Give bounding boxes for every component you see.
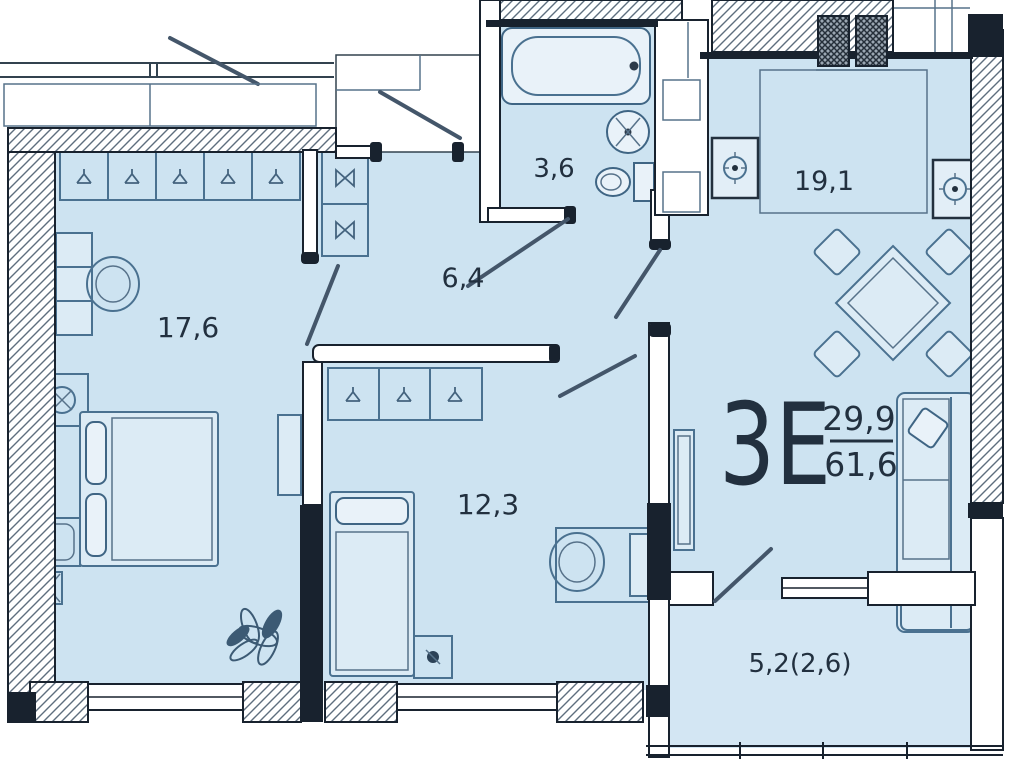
bed-icon	[80, 412, 218, 566]
wall-segment	[968, 503, 1003, 518]
wall-pier	[325, 682, 397, 722]
door-jamb	[649, 323, 671, 337]
wall-column	[647, 503, 671, 600]
wall-segment	[8, 128, 55, 722]
sink-icon	[607, 111, 649, 153]
washer-icon	[712, 138, 758, 198]
door-jamb	[452, 142, 464, 162]
wall-segment	[486, 20, 658, 27]
wall-column	[300, 505, 323, 722]
window-icon	[782, 578, 868, 598]
door-jamb	[370, 142, 382, 162]
living-area-label: 29,9	[822, 399, 895, 438]
room-label-bedroom2: 12,3	[457, 488, 519, 521]
floor-plan-canvas: 17,6 6,4 3,6 19,1 12,3 5,2(2,6) 3Е 29,9 …	[0, 0, 1011, 768]
bathtub-icon	[502, 28, 650, 104]
wall-column	[646, 685, 670, 717]
apartment-type-label: 3Е	[719, 379, 831, 511]
dining-table-icon	[813, 228, 973, 378]
wall-segment	[313, 345, 558, 362]
room-label-hall: 6,4	[442, 263, 485, 294]
wall-segment	[486, 0, 682, 20]
wall-segment	[480, 0, 500, 222]
wall-segment	[303, 362, 322, 505]
wall-pier	[557, 682, 643, 722]
wall-pier	[30, 682, 88, 722]
wall-pier	[669, 572, 713, 605]
wall-segment	[971, 30, 1003, 503]
wall-segment	[488, 208, 572, 222]
vent-shaft-icon	[856, 16, 887, 66]
wall-segment	[303, 150, 317, 262]
door-jamb	[301, 252, 319, 264]
room-label-loggia: 5,2(2,6)	[749, 649, 852, 679]
wall-corner	[8, 692, 36, 722]
total-area-label: 61,6	[824, 445, 897, 484]
tv-icon	[674, 430, 694, 550]
room-label-bedroom: 17,6	[157, 311, 219, 344]
wall-pier	[868, 572, 975, 605]
service-shaft	[655, 20, 708, 215]
room-label-bathroom: 3,6	[533, 154, 574, 184]
room-label-kitchen-living: 19,1	[794, 166, 854, 197]
dresser-icon	[278, 415, 301, 495]
wall-segment	[336, 146, 372, 158]
vent-shaft-icon	[818, 16, 849, 66]
floor-plan: 17,6 6,4 3,6 19,1 12,3 5,2(2,6) 3Е 29,9 …	[0, 0, 1011, 768]
window-icon	[88, 684, 243, 710]
wall-segment	[968, 14, 1003, 57]
wall-pier	[243, 682, 301, 722]
wall-segment	[8, 128, 336, 152]
wall-loggia	[971, 518, 1003, 750]
door-jamb	[549, 344, 560, 363]
bed2-icon	[330, 492, 414, 676]
window-icon	[397, 684, 557, 710]
